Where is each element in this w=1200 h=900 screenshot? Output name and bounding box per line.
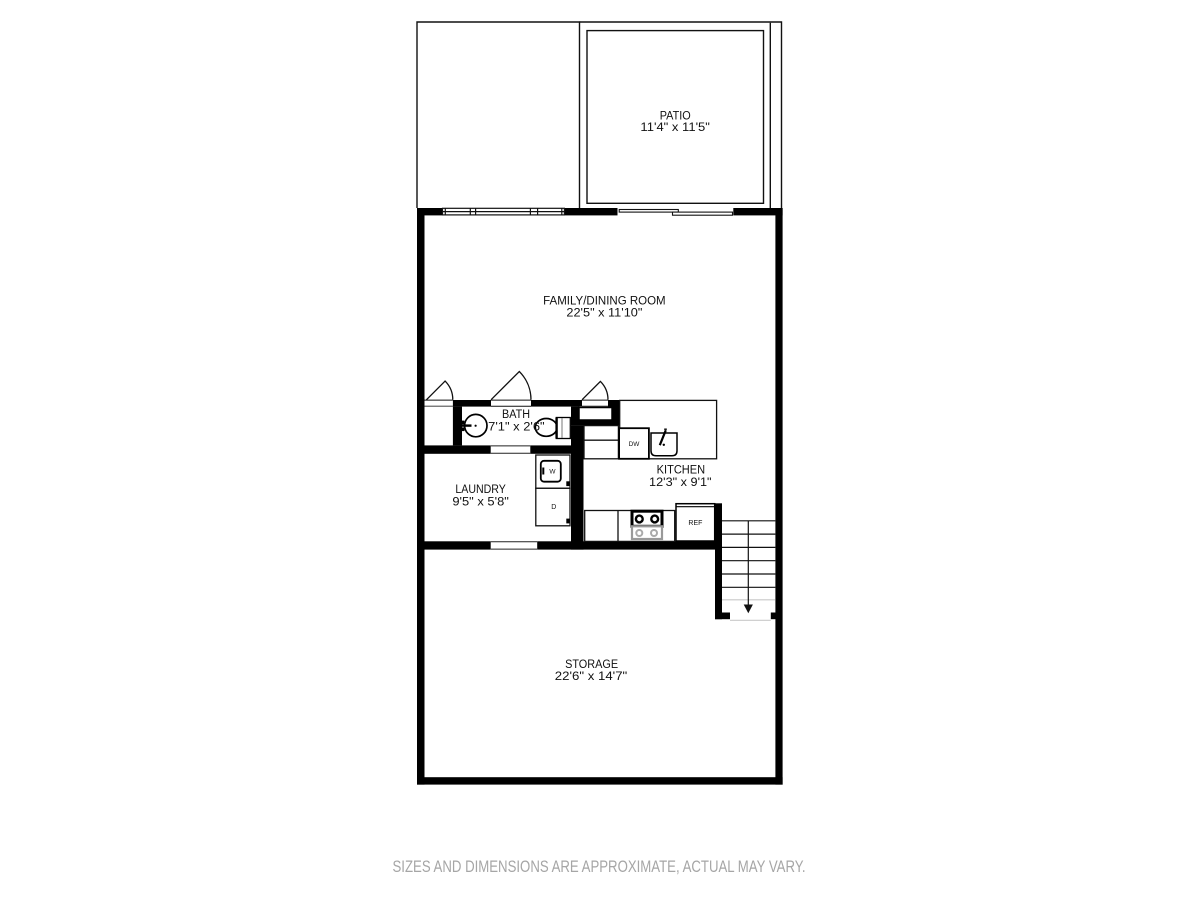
svg-text:W: W — [549, 469, 556, 476]
svg-text:D: D — [551, 504, 556, 511]
svg-text:DW: DW — [629, 441, 641, 448]
svg-text:22'6" x 14'7": 22'6" x 14'7" — [555, 669, 628, 683]
svg-text:11'4" x 11'5": 11'4" x 11'5" — [640, 120, 710, 134]
svg-text:9'5" x 5'8": 9'5" x 5'8" — [452, 495, 509, 509]
svg-text:REF: REF — [688, 520, 702, 527]
svg-text:22'5" x 11'10": 22'5" x 11'10" — [566, 305, 642, 319]
svg-text:SIZES AND DIMENSIONS ARE APPRO: SIZES AND DIMENSIONS ARE APPROXIMATE, AC… — [393, 858, 806, 876]
svg-text:12'3" x 9'1": 12'3" x 9'1" — [649, 475, 712, 489]
svg-text:7'1" x 2'6": 7'1" x 2'6" — [488, 420, 545, 434]
